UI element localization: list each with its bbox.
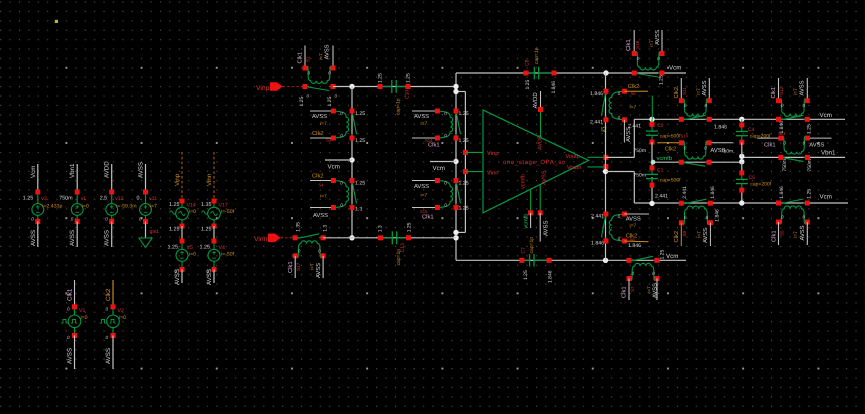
svg-text:AVSS: AVSS — [798, 80, 805, 95]
svg-text:Vinp: Vinp — [174, 173, 181, 186]
svg-text:Clk1: Clk1 — [770, 87, 777, 99]
svg-text:1.25: 1.25 — [807, 124, 813, 134]
svg-text:i=2.433p: i=2.433p — [42, 204, 62, 210]
svg-text:AVSS: AVSS — [69, 230, 76, 246]
svg-text:1.25: 1.25 — [378, 73, 384, 83]
svg-text:0: 0 — [139, 217, 142, 222]
svg-text:AVDD: AVDD — [104, 161, 111, 178]
svg-text:vcmfb: vcmfb — [519, 174, 526, 189]
svg-text:Vinn: Vinn — [487, 170, 499, 177]
svg-text:v1: v1 — [81, 196, 87, 202]
svg-text:i=7.: i=7. — [320, 194, 328, 200]
svg-text:AVSS: AVSS — [67, 348, 74, 364]
svg-text:0: 0 — [706, 215, 709, 220]
svg-text:2.441: 2.441 — [591, 213, 604, 219]
svg-text:0: 0 — [803, 103, 806, 108]
svg-text:Clk2: Clk2 — [312, 130, 324, 137]
svg-text:1.3: 1.3 — [355, 207, 362, 213]
svg-text:i=7.: i=7. — [320, 121, 328, 127]
svg-text:S1: S1 — [306, 56, 311, 62]
svg-text:i=7.: i=7. — [318, 52, 324, 60]
svg-text:vcmfb: vcmfb — [523, 214, 530, 229]
svg-text:Vbn1: Vbn1 — [821, 150, 836, 157]
svg-text:Clk2: Clk2 — [312, 173, 324, 180]
svg-text:Clk2: Clk2 — [628, 83, 640, 90]
svg-text:1.25: 1.25 — [807, 189, 813, 199]
svg-text:1.846: 1.846 — [715, 209, 721, 222]
svg-text:1.25.: 1.25. — [168, 244, 180, 250]
svg-text:Clk2: Clk2 — [105, 288, 112, 301]
svg-text:Clk2: Clk2 — [673, 231, 680, 243]
svg-text:S13: S13 — [778, 131, 786, 136]
svg-text:C7: C7 — [521, 247, 527, 254]
svg-text:Vinn: Vinn — [206, 173, 213, 186]
svg-text:V5: V5 — [187, 245, 193, 251]
svg-text:0: 0 — [684, 215, 687, 220]
svg-text:Clk1: Clk1 — [770, 230, 777, 242]
svg-text:Clk1: Clk1 — [287, 261, 294, 273]
svg-text:i=0: i=0 — [82, 204, 89, 210]
svg-text:0: 0 — [298, 248, 301, 253]
svg-text:i=7: i=7 — [793, 231, 799, 238]
svg-text:AVSS: AVSS — [414, 113, 429, 120]
svg-text:i=-50f: i=-50f — [221, 252, 235, 258]
svg-text:1.846: 1.846 — [551, 81, 557, 94]
svg-text:Vcm: Vcm — [820, 194, 832, 201]
svg-text:1.3: 1.3 — [378, 225, 384, 232]
svg-text:2.441: 2.441 — [628, 124, 641, 130]
svg-text:0: 0 — [803, 141, 806, 146]
svg-text:i=0: i=0 — [119, 315, 126, 321]
svg-text:AVSS: AVSS — [654, 30, 661, 45]
svg-text:v11: v11 — [149, 196, 157, 202]
svg-text:i=7: i=7 — [150, 204, 157, 210]
svg-text:2.441: 2.441 — [655, 194, 668, 200]
svg-text:0.: 0. — [137, 196, 142, 202]
svg-text:Clk1: Clk1 — [428, 142, 440, 149]
svg-text:i=-59.3m: i=-59.3m — [116, 204, 136, 210]
svg-text:0: 0 — [340, 111, 343, 116]
svg-text:AVSS: AVSS — [313, 212, 328, 219]
svg-text:1.25: 1.25 — [523, 270, 529, 280]
svg-text:1.846: 1.846 — [710, 186, 716, 199]
svg-text:0: 0 — [803, 215, 806, 220]
svg-text:Voutp: Voutp — [566, 154, 580, 160]
svg-text:0: 0 — [684, 145, 687, 150]
svg-text:0: 0 — [340, 203, 343, 208]
svg-text:cap=500f: cap=500f — [660, 178, 681, 184]
svg-text:Clk1: Clk1 — [764, 141, 776, 148]
svg-text:Vcm: Vcm — [669, 65, 681, 72]
svg-text:0: 0 — [340, 180, 343, 185]
svg-text:0: 0 — [328, 71, 331, 76]
svg-text:1.25: 1.25 — [406, 73, 412, 83]
svg-text:1.846: 1.846 — [590, 91, 603, 97]
svg-text:S11: S11 — [682, 87, 687, 95]
svg-text:i=7: i=7 — [793, 88, 799, 95]
svg-text:Vcm: Vcm — [666, 253, 678, 260]
svg-text:cap=500f: cap=500f — [660, 133, 681, 139]
svg-text:1.25: 1.25 — [459, 206, 469, 212]
svg-text:0: 0 — [618, 236, 621, 241]
svg-text:0: 0 — [105, 217, 108, 222]
svg-text:0: 0 — [67, 335, 70, 340]
svg-text:vcmfb: vcmfb — [657, 155, 672, 162]
svg-text:AVSS: AVSS — [626, 216, 641, 223]
svg-text:0: 0 — [335, 94, 338, 99]
svg-text:0: 0 — [684, 103, 687, 108]
svg-text:AVSS: AVSS — [30, 230, 37, 246]
svg-text:gnd.: gnd. — [150, 229, 160, 235]
svg-text:AVSS: AVSS — [710, 147, 725, 154]
svg-text:V2: V2 — [118, 308, 124, 314]
svg-text:V14: V14 — [187, 202, 196, 208]
svg-text:0: 0 — [781, 103, 784, 108]
svg-text:S10: S10 — [681, 134, 689, 139]
svg-text:1.846: 1.846 — [714, 124, 727, 130]
svg-text:AVSS: AVSS — [312, 113, 327, 120]
svg-text:750m: 750m — [634, 173, 647, 179]
svg-text:AVSS: AVSS — [701, 80, 708, 95]
svg-text:i=7: i=7 — [310, 263, 316, 270]
svg-text:AVSS: AVSS — [543, 220, 550, 236]
svg-text:1.25: 1.25 — [525, 80, 531, 90]
svg-text:cap=1p: cap=1p — [529, 237, 535, 254]
svg-text:1.25: 1.25 — [23, 196, 34, 202]
svg-text:C10: C10 — [404, 90, 410, 99]
svg-text:i=0: i=0 — [189, 252, 196, 258]
svg-text:i=7: i=7 — [646, 286, 652, 293]
svg-text:Vinp: Vinp — [487, 150, 499, 157]
svg-text:i=7: i=7 — [649, 40, 655, 47]
svg-text:0: 0 — [618, 115, 621, 120]
svg-text:S15: S15 — [420, 209, 428, 214]
svg-text:Clk2: Clk2 — [673, 87, 680, 99]
svg-text:1.25: 1.25 — [660, 250, 666, 260]
svg-text:i=0: i=0 — [81, 315, 88, 321]
svg-text:S16: S16 — [635, 40, 640, 49]
svg-text:V1: V1 — [79, 308, 85, 314]
svg-text:1.25: 1.25 — [459, 138, 469, 144]
svg-text:AVSS: AVSS — [315, 263, 322, 278]
svg-text:AVSS: AVSS — [138, 162, 145, 178]
svg-text:Vcm: Vcm — [328, 164, 340, 171]
svg-text:S5: S5 — [779, 230, 784, 236]
svg-text:Clk1: Clk1 — [621, 286, 628, 298]
svg-text:0: 0 — [318, 248, 321, 253]
svg-text:1.25: 1.25 — [169, 227, 180, 233]
svg-text:S17: S17 — [296, 262, 301, 271]
svg-text:750m: 750m — [807, 159, 813, 172]
svg-text:S12: S12 — [779, 86, 784, 95]
svg-text:750m: 750m — [782, 159, 788, 172]
svg-text:0: 0 — [71, 217, 74, 222]
svg-text:Clk2: Clk2 — [665, 146, 677, 153]
svg-text:AVSS: AVSS — [174, 269, 181, 285]
svg-text:0: 0 — [637, 56, 640, 61]
svg-text:AVSS: AVSS — [105, 348, 112, 364]
svg-text:0: 0 — [618, 91, 621, 96]
svg-text:cap=1p: cap=1p — [396, 98, 402, 115]
svg-text:S9: S9 — [682, 230, 687, 236]
svg-text:Voutn: Voutn — [567, 165, 581, 171]
svg-text:0: 0 — [308, 71, 311, 76]
svg-text:Clk1: Clk1 — [297, 52, 304, 64]
svg-text:2.441: 2.441 — [682, 186, 688, 199]
svg-text:AVSS: AVSS — [324, 44, 331, 59]
svg-text:1.25: 1.25 — [355, 181, 365, 187]
svg-text:C8: C8 — [525, 59, 531, 66]
svg-text:0: 0 — [632, 271, 635, 276]
svg-text:0: 0 — [106, 335, 109, 340]
svg-text:0: 0 — [705, 103, 708, 108]
svg-text:C0: C0 — [657, 123, 664, 129]
svg-text:AVSS: AVSS — [799, 225, 806, 240]
svg-text:0: 0 — [781, 215, 784, 220]
svg-text:0: 0 — [704, 145, 707, 150]
svg-text:C5: C5 — [749, 175, 756, 181]
svg-text:1.25: 1.25 — [327, 97, 333, 107]
svg-text:1.25: 1.25 — [355, 111, 365, 117]
svg-text:i=7: i=7 — [421, 193, 428, 199]
svg-text:0: 0 — [657, 56, 660, 61]
svg-text:i=7: i=7 — [630, 104, 637, 110]
svg-text:750m: 750m — [634, 148, 647, 154]
svg-text:Vcm: Vcm — [433, 165, 445, 172]
svg-text:Vbn1: Vbn1 — [69, 163, 76, 178]
svg-text:2.5: 2.5 — [100, 196, 108, 202]
svg-text:0: 0 — [444, 180, 447, 185]
svg-text:0: 0 — [106, 306, 109, 311]
svg-text:1.25.: 1.25. — [200, 244, 212, 250]
svg-text:1.35: 1.35 — [201, 202, 212, 208]
svg-text:V17: V17 — [219, 202, 228, 208]
svg-text:S7: S7 — [630, 286, 635, 292]
svg-text:0: 0 — [783, 141, 786, 146]
svg-text:Clk1: Clk1 — [422, 213, 434, 220]
svg-text:1.25: 1.25 — [407, 222, 413, 232]
svg-text:1.25: 1.25 — [201, 227, 212, 233]
svg-text:1.846: 1.846 — [628, 243, 641, 249]
svg-text:cap=1p: cap=1p — [396, 249, 402, 266]
svg-text:AVSS: AVSS — [652, 283, 659, 298]
svg-text:S6: S6 — [631, 91, 637, 96]
svg-text:0: 0 — [31, 217, 34, 222]
svg-text:i=7: i=7 — [696, 88, 702, 95]
svg-text:750m: 750m — [59, 196, 73, 202]
svg-text:Vcm: Vcm — [30, 166, 37, 178]
svg-text:AVDD: AVDD — [538, 135, 544, 150]
svg-text:AVSS: AVSS — [541, 170, 547, 185]
svg-text:0: 0 — [652, 271, 655, 276]
svg-text:0: 0 — [307, 94, 310, 99]
svg-text:0: 0 — [618, 214, 621, 219]
svg-text:cap=200f: cap=200f — [750, 134, 771, 140]
svg-text:Clk1: Clk1 — [625, 39, 632, 51]
svg-text:C4: C4 — [748, 127, 755, 133]
svg-text:C1: C1 — [657, 167, 664, 173]
svg-text:v3: v3 — [41, 196, 47, 202]
svg-text:1.25: 1.25 — [299, 97, 305, 107]
svg-text:1.35: 1.35 — [296, 222, 302, 232]
svg-text:2.441: 2.441 — [590, 119, 603, 125]
svg-text:1.25: 1.25 — [169, 202, 180, 208]
svg-text:AVSS: AVSS — [414, 183, 429, 190]
svg-text:i=-50f: i=-50f — [221, 209, 235, 215]
svg-text:i=7.: i=7. — [421, 121, 429, 127]
svg-text:v12: v12 — [115, 196, 123, 202]
svg-text:1.25: 1.25 — [459, 181, 469, 187]
svg-text:0: 0 — [444, 133, 447, 138]
svg-text:i=7: i=7 — [697, 231, 703, 238]
svg-text:1.846: 1.846 — [591, 240, 604, 246]
svg-text:cap=200f: cap=200f — [750, 181, 771, 187]
svg-text:i=0: i=0 — [189, 209, 196, 215]
svg-text:i=7: i=7 — [630, 223, 637, 229]
svg-text:1.25: 1.25 — [459, 111, 469, 117]
svg-text:0: 0 — [340, 133, 343, 138]
svg-text:0: 0 — [444, 203, 447, 208]
svg-text:1.25: 1.25 — [355, 138, 365, 144]
svg-text:0: 0 — [444, 111, 447, 116]
svg-text:0: 0 — [67, 306, 70, 311]
svg-text:Vinn: Vinn — [254, 236, 268, 243]
svg-text:AVSS: AVSS — [702, 228, 709, 243]
svg-text:one_stage_OPA_sc: one_stage_OPA_sc — [503, 159, 565, 166]
svg-text:1.846: 1.846 — [779, 186, 785, 199]
svg-text:V4: V4 — [219, 245, 225, 251]
svg-text:AVSS: AVSS — [206, 269, 213, 285]
svg-text:Clk1: Clk1 — [67, 288, 74, 301]
svg-text:Vcm: Vcm — [820, 112, 832, 119]
svg-text:Vinp: Vinp — [256, 85, 270, 92]
svg-text:1.25: 1.25 — [659, 75, 665, 85]
svg-text:1.846: 1.846 — [548, 270, 554, 283]
svg-text:S4: S4 — [319, 183, 325, 188]
svg-text:cap=1p: cap=1p — [534, 47, 540, 64]
svg-text:AVSS: AVSS — [809, 141, 824, 148]
svg-text:AVDD: AVDD — [532, 92, 539, 109]
svg-text:AVSS: AVSS — [104, 230, 111, 246]
svg-text:1.3: 1.3 — [323, 225, 329, 232]
